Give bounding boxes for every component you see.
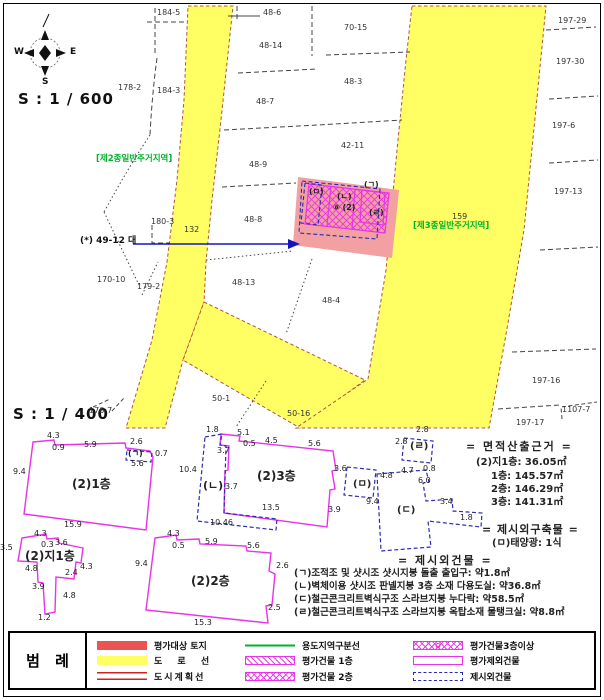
area-note-line: (ㄱ)조적조 및 샷시조 샷시지붕 돌출 출입구: 약1.8㎡	[294, 569, 510, 579]
parcel-number-label: 197-16	[532, 377, 560, 385]
parcel-number-label: 70-15	[344, 24, 367, 32]
legend-column-2: 용도지역구분선 평가건물 1층 평가건물 2층	[245, 637, 413, 684]
parcel-number-label: 48-3	[344, 78, 362, 86]
blue-dashed-swatch	[413, 672, 463, 681]
dimension-label: 0.5	[243, 440, 256, 448]
dimension-label: 13.5	[262, 504, 280, 512]
dimension-label: 4.3	[34, 530, 47, 538]
legend-column-3: 평가건물3층이상 평가제외건물 제시외건물	[413, 637, 590, 684]
floor-plan-label: (ㄴ)	[203, 480, 223, 491]
legend-label: 평가건물 2층	[302, 670, 353, 683]
site-building-mark: ⑧ (2)	[333, 204, 355, 212]
area-note-line: (ㄹ)철근콘크리트벽식구조 스라브지붕 옥탑소재 물탱크실: 약8.8㎡	[294, 608, 565, 618]
dimension-label: 3.6	[334, 465, 347, 473]
compass-west-label: W	[14, 48, 24, 57]
area-note-line: (ㅁ)태양광: 1식	[492, 539, 562, 549]
legend-title: 범 례	[10, 633, 87, 688]
zone2-label: [제2종일반주거지역]	[96, 155, 172, 164]
dimension-label: 10.46	[210, 519, 233, 527]
legend-column-1: 평가대상 토지 도 로 선 도시계획선	[97, 637, 245, 684]
area-note-line: 2층: 146.29㎡	[491, 485, 563, 495]
legend-label: 평가건물 1층	[302, 654, 353, 667]
legend-item: 용도지역구분선	[245, 638, 413, 652]
dimension-label: 10.4	[179, 466, 197, 474]
legend-item: 평가건물 1층	[245, 654, 413, 668]
legend-item: 평가대상 토지	[97, 638, 245, 652]
area-note-line: (ㄷ)철근콘크리트벽식구조 스라브지붕 누다락: 약58.5㎡	[294, 595, 524, 605]
dimension-label: 4.3	[47, 432, 60, 440]
floor-plan-label: (ㅁ)	[353, 480, 371, 490]
legend-label: 도시계획선	[154, 670, 205, 683]
parcel-number-label: 48-13	[232, 279, 255, 287]
legend-item: 평가제외건물	[413, 654, 590, 668]
parcel-number-label: 176-7	[89, 407, 112, 415]
compass-east-label: E	[70, 48, 76, 57]
dimension-label: 4.8	[63, 592, 76, 600]
floor-plan-label: (ㄷ)	[397, 506, 415, 516]
dimension-label: 1.8	[460, 514, 473, 522]
empty-rect-swatch	[413, 656, 463, 665]
yellow-fill-swatch	[97, 656, 147, 665]
legend-label: 용도지역구분선	[302, 639, 360, 652]
cadastral-appraisal-map: S : 1 / 600 S : 1 / 400 W E S [제2종일반주거지역…	[0, 0, 604, 700]
dimension-label: 0.7	[155, 450, 168, 458]
dimension-label: 4.8	[380, 472, 393, 480]
site-building-mark: (ㅁ)	[309, 188, 324, 196]
floor-plan-label: (2)2층	[191, 575, 230, 587]
zone3-label: [제3종일반주거지역]	[413, 222, 489, 231]
double-red-line-swatch	[97, 672, 147, 681]
floor-plan-label: (2)지1층	[25, 550, 75, 562]
dimension-label: 6.0	[418, 477, 431, 485]
legend-item: 제시외건물	[413, 669, 590, 683]
parcel-number-label: 48-7	[256, 98, 274, 106]
parcel-number-label: 197-17	[516, 419, 544, 427]
parcel-number-label: 1107-7	[562, 406, 590, 414]
dimension-label: 4.3	[80, 563, 93, 571]
dimension-label: 3.9	[328, 506, 341, 514]
dimension-label: 4.7	[401, 467, 414, 475]
dimension-label: 4.5	[265, 437, 278, 445]
red-fill-swatch	[97, 641, 147, 650]
dimension-label: 2.4	[65, 569, 78, 577]
floor-plan-label: (2)1층	[72, 478, 111, 490]
circle-cross-hatch-swatch	[413, 641, 463, 650]
dimension-label: 4.8	[25, 565, 38, 573]
legend-columns: 평가대상 토지 도 로 선 도시계획선 용도지역구분선 평가	[87, 633, 594, 688]
site-building-mark: (ㄱ)	[364, 181, 379, 189]
dimension-label: 1.8	[206, 426, 219, 434]
parcel-number-label: 184-5	[157, 9, 180, 17]
green-line-swatch	[245, 641, 295, 650]
dimension-label: 3.4	[440, 498, 453, 506]
legend-item: 평가건물 2층	[245, 669, 413, 683]
parcel-number-label: 48-14	[259, 42, 282, 50]
area-note-line: = 면적산출근거 =	[466, 441, 573, 452]
dimension-label: 5.9	[84, 441, 97, 449]
parcel-number-label: 42-11	[341, 142, 364, 150]
map-scale-label: S : 1 / 600	[18, 92, 114, 107]
north-compass-icon	[24, 14, 66, 76]
subject-parcel-callout: (*) 49-12 대	[80, 237, 136, 246]
dimension-label: 0.9	[52, 444, 65, 452]
legend-label: 도 로 선	[154, 654, 215, 667]
parcel-number-label: 48-8	[244, 216, 262, 224]
dimension-label: 0.3	[41, 541, 54, 549]
parcel-number-label: 178-2	[118, 84, 141, 92]
dimension-label: 3.9	[32, 583, 45, 591]
dimension-label: 3.7	[217, 447, 230, 455]
site-building-mark: (ㄴ)	[337, 193, 352, 201]
parcel-number-label: 50-1	[212, 395, 230, 403]
area-note-line: 3층: 141.31㎡	[491, 498, 563, 508]
parcel-number-label: 50-16	[287, 410, 310, 418]
site-building-mark: (ㄹ)	[369, 209, 384, 217]
area-note-line: = 제시외건물 =	[398, 555, 493, 566]
parcel-number-label: 197-30	[556, 58, 584, 66]
dimension-label: 3.6	[55, 539, 68, 547]
cross-hatch-swatch	[245, 672, 295, 681]
legend-label: 제시외건물	[470, 670, 511, 683]
subject-pointer-arrow	[133, 239, 300, 249]
legend-label: 평가건물3층이상	[470, 639, 534, 652]
compass-south-label: S	[42, 78, 48, 87]
parcel-number-label: 197-6	[552, 122, 575, 130]
area-note-line: (ㄴ)벽체이용 샷시조 판넬지붕 3층 소재 다용도실: 약36.8㎡	[294, 582, 541, 592]
dimension-label: 0.5	[172, 542, 185, 550]
dimension-label: 9.4	[13, 468, 26, 476]
dimension-label: 9.4	[366, 498, 379, 506]
parcel-number-label: 197-13	[554, 188, 582, 196]
legend-item: 도시계획선	[97, 669, 245, 683]
parcel-number-label: 48-6	[263, 9, 281, 17]
parcel-number-label: 197-29	[558, 17, 586, 25]
area-note-line: (2)지1층: 36.05㎡	[476, 458, 567, 468]
parcel-number-label: 170-10	[97, 276, 125, 284]
parcel-number-label: 48-9	[249, 161, 267, 169]
legend-box: 범 례 평가대상 토지 도 로 선 도시계획선 용도지	[8, 631, 596, 690]
area-note-line: = 제시외구축물 =	[482, 524, 579, 535]
dimension-label: 5.6	[308, 440, 321, 448]
parcel-number-label: 179-2	[137, 283, 160, 291]
legend-item: 평가건물3층이상	[413, 638, 590, 652]
dimension-label: 5.9	[205, 538, 218, 546]
parcel-number-label: 159	[452, 213, 467, 221]
dimension-label: 0.8	[423, 465, 436, 473]
dimension-label: 5.6	[131, 460, 144, 468]
legend-label: 평가제외건물	[470, 654, 520, 667]
dimension-label: 2.8	[416, 426, 429, 434]
parcel-number-label: 180-3	[151, 218, 174, 226]
dimension-label: 2.6	[276, 562, 289, 570]
legend-label: 평가대상 토지	[154, 639, 207, 652]
legend-item: 도 로 선	[97, 654, 245, 668]
dimension-label: 15.3	[194, 619, 212, 627]
dimension-label: 15.9	[64, 521, 82, 529]
parcel-number-label: 48-4	[322, 297, 340, 305]
dimension-label: 4.3	[167, 530, 180, 538]
dimension-label: (ㄱ)	[128, 450, 143, 458]
dimension-label: 2.6	[130, 438, 143, 446]
dimension-label: 3.5	[0, 544, 13, 552]
dimension-label: 5.1	[237, 429, 250, 437]
area-note-line: 1층: 145.57㎡	[491, 472, 563, 482]
parcel-number-label: 132	[184, 226, 199, 234]
diagonal-hatch-swatch	[245, 656, 295, 665]
dimension-label: 9.4	[135, 560, 148, 568]
parcel-number-label: 184-3	[157, 87, 180, 95]
dimension-label: 5.6	[247, 542, 260, 550]
dimension-label: 1.2	[38, 614, 51, 622]
dimension-label: 2.3	[395, 438, 408, 446]
floor-plan-label: (2)3층	[257, 470, 296, 482]
dimension-label: 3.7	[225, 483, 238, 491]
dimension-label: 2.5	[268, 604, 281, 612]
floor-plan-label: (ㄹ)	[410, 442, 428, 452]
